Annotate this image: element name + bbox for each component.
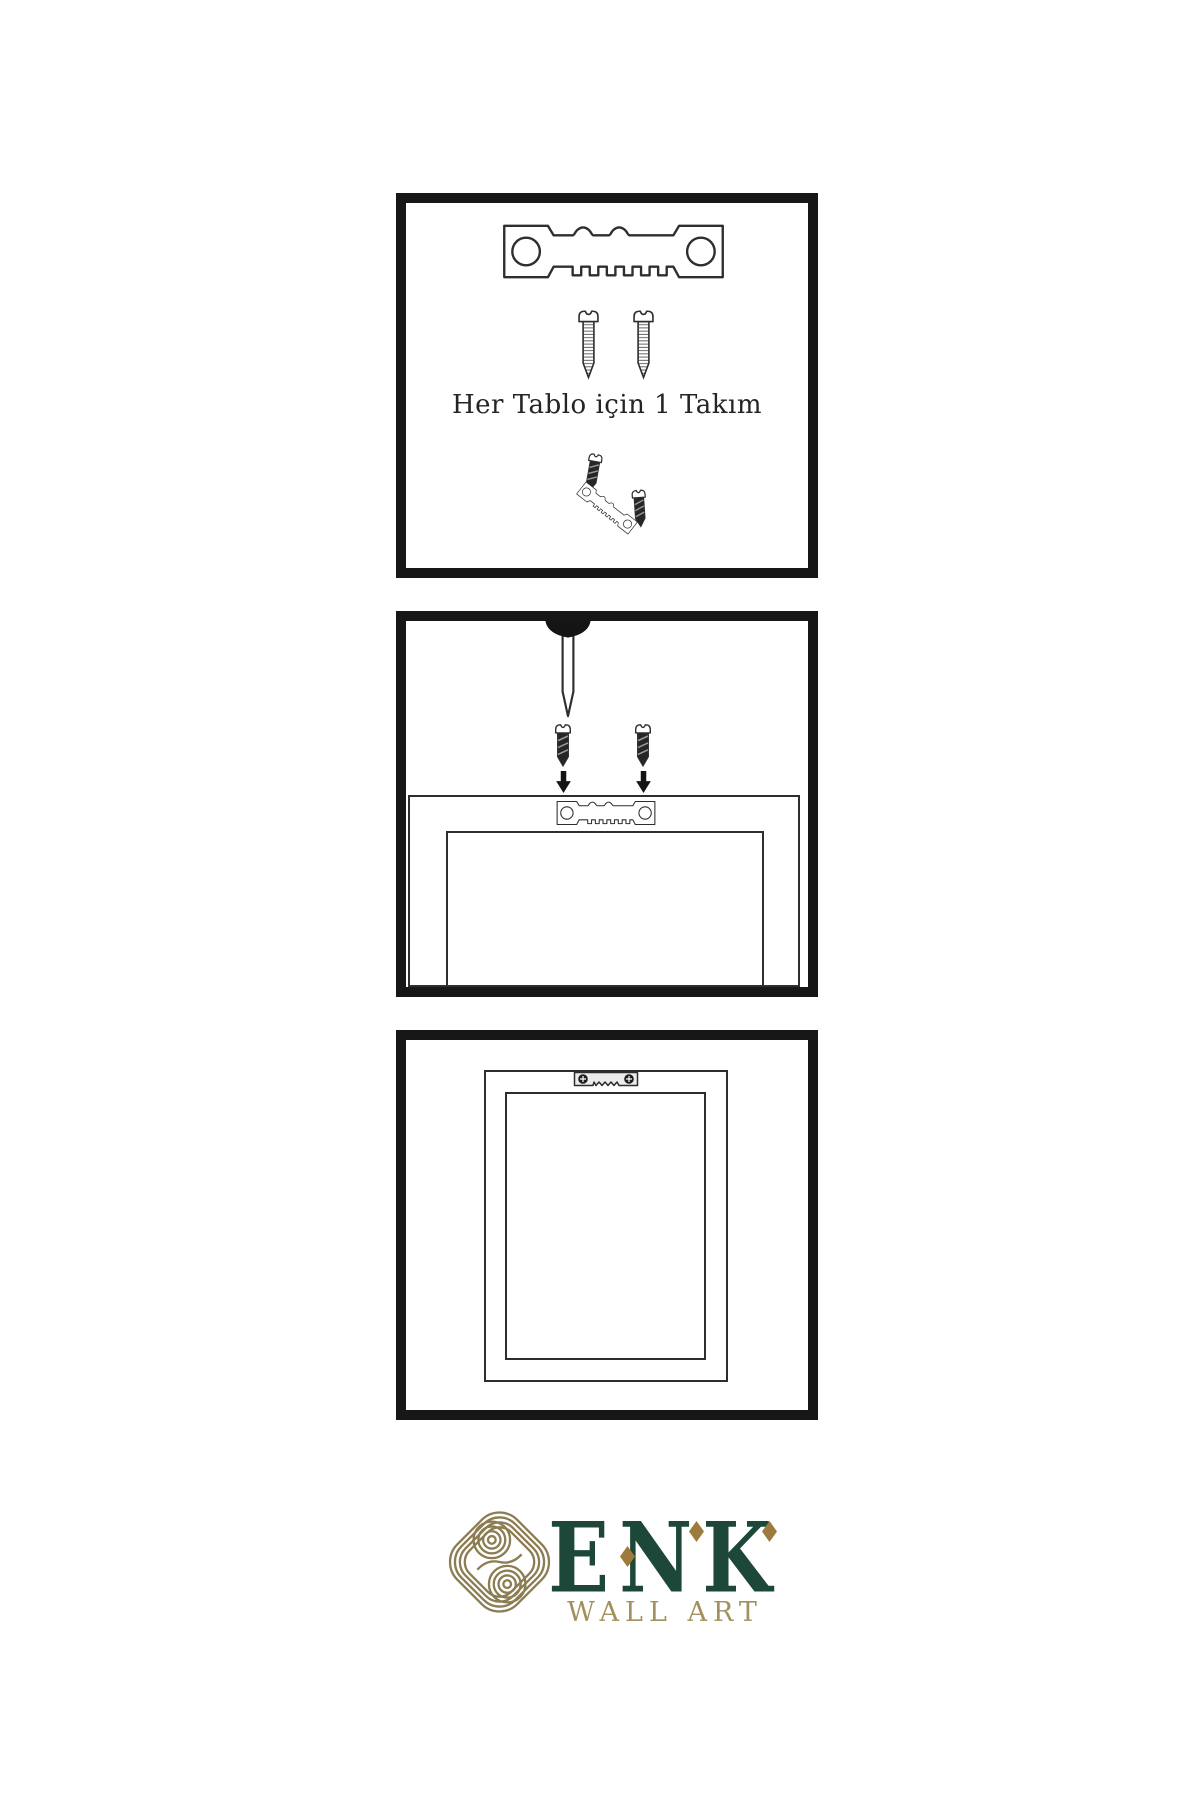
kit-caption: Her Tablo için 1 Takım — [406, 390, 808, 420]
screw-icon — [553, 722, 573, 770]
hanger-kit-angled-icon — [556, 440, 676, 540]
down-arrow-icon — [556, 771, 571, 793]
screw-icon — [575, 306, 602, 384]
sawtooth-hanger-icon — [555, 800, 657, 826]
instruction-sheet: Her Tablo için 1 Takım — [0, 0, 1200, 1800]
step-2-panel — [396, 611, 818, 997]
wall-nail-icon — [544, 621, 592, 721]
brand-name: ENK — [540, 1510, 790, 1606]
frame-inner-outline — [446, 831, 764, 987]
step-1-panel: Her Tablo için 1 Takım — [396, 193, 818, 578]
step-3-panel — [396, 1030, 818, 1420]
mounted-sawtooth-hanger-icon — [573, 1071, 639, 1087]
frame-inner-outline — [505, 1092, 706, 1360]
down-arrow-icon — [636, 771, 651, 793]
sawtooth-hanger-icon — [497, 223, 730, 280]
screw-icon — [630, 306, 657, 384]
brand-subtitle: WALL ART — [540, 1597, 790, 1628]
screw-icon — [633, 722, 653, 770]
